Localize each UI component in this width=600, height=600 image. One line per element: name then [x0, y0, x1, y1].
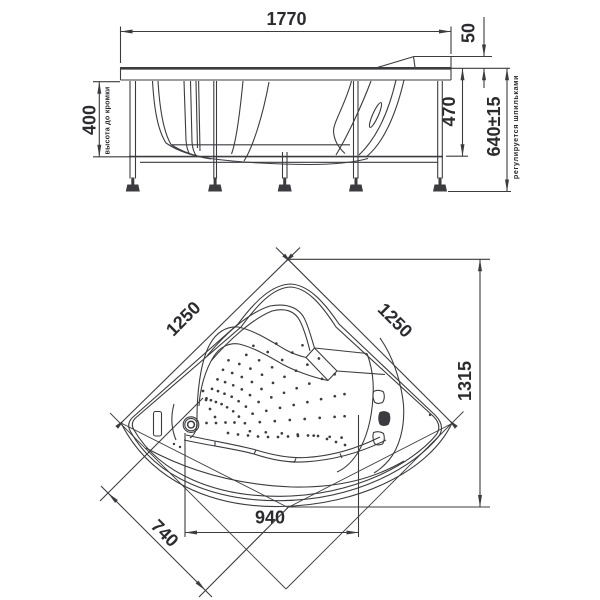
svg-text:50: 50 — [459, 23, 479, 43]
svg-text:400: 400 — [80, 105, 100, 135]
svg-text:1250: 1250 — [162, 298, 204, 340]
svg-text:640±15: 640±15 — [484, 97, 504, 157]
svg-text:высота до кромки: высота до кромки — [103, 86, 112, 154]
svg-text:1315: 1315 — [455, 361, 475, 401]
svg-text:1250: 1250 — [374, 299, 416, 341]
svg-text:740: 740 — [147, 516, 182, 551]
svg-text:1770: 1770 — [266, 9, 306, 29]
svg-text:940: 940 — [255, 508, 285, 528]
svg-text:регулируется шпильками: регулируется шпильками — [511, 75, 520, 179]
